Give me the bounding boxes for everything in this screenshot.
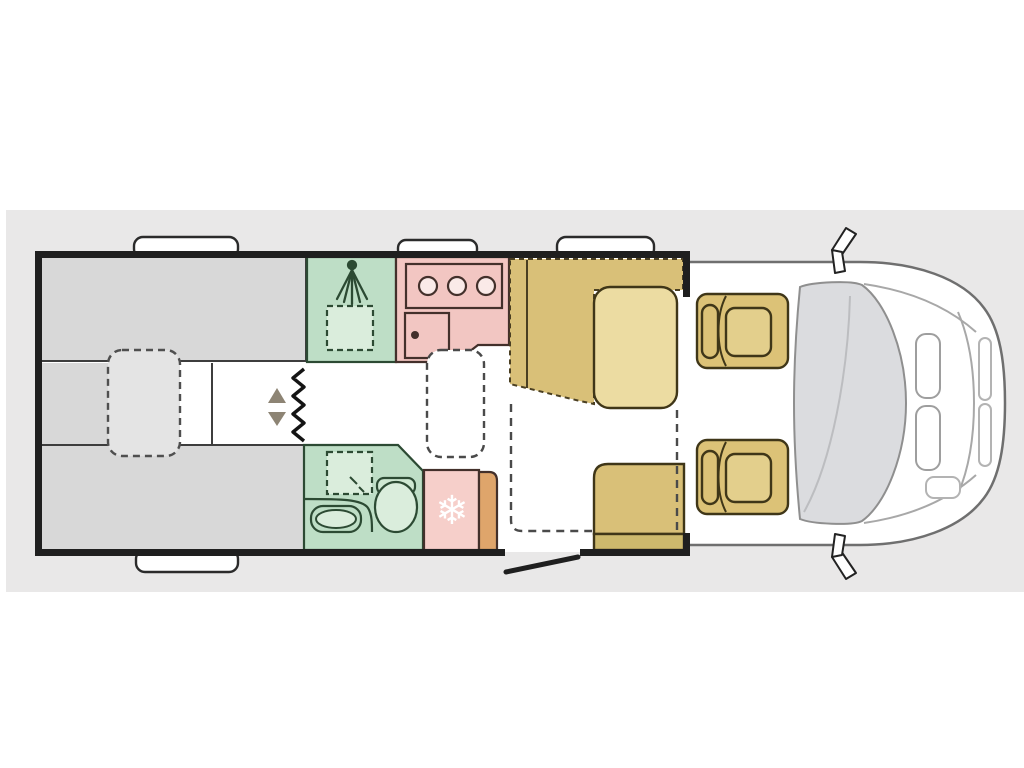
shower-tray [327,306,373,350]
fridge: ❄ [424,470,497,550]
wall-top [35,251,690,258]
driver-armrest [702,451,718,504]
bathroom-shower-tray [327,452,372,494]
snowflake-icon: ❄ [435,488,469,534]
fridge-side-panel [479,472,497,550]
rear-bed-top [41,257,306,361]
bumper-detail [926,477,960,498]
headlight-left-icon [916,334,940,398]
driver-seat-cushion [726,454,771,502]
rear-bed-bottom [41,445,306,550]
bed-infill-cushion [108,350,180,456]
entry-side-seat [594,464,684,550]
wall-bottom-left [35,549,505,556]
grille-slot-bottom-icon [979,404,991,466]
washbasin-icon [311,506,361,532]
driver-seat [697,440,788,514]
toilet-icon [375,478,417,532]
wall-stub-bottom [683,533,690,549]
passenger-seat-cushion [726,308,771,356]
wall-stub-top [683,258,690,297]
grille-slot-top-icon [979,338,991,400]
passenger-armrest [702,305,718,358]
passenger-seat [697,294,788,368]
bench-seat-cushion [594,287,677,408]
side-seat-cushion [594,464,684,534]
dinette-l-bench [510,259,683,408]
bed-center-platform [41,363,112,444]
side-seat-backrest [594,534,684,550]
headlight-right-icon [916,406,940,470]
motorhome-floorplan-canvas: ❄ [0,0,1024,768]
wall-left [35,251,42,556]
wall-bottom-right [580,549,690,556]
dinette-table [427,350,484,457]
shower-room [307,257,396,362]
bathroom [304,445,423,550]
